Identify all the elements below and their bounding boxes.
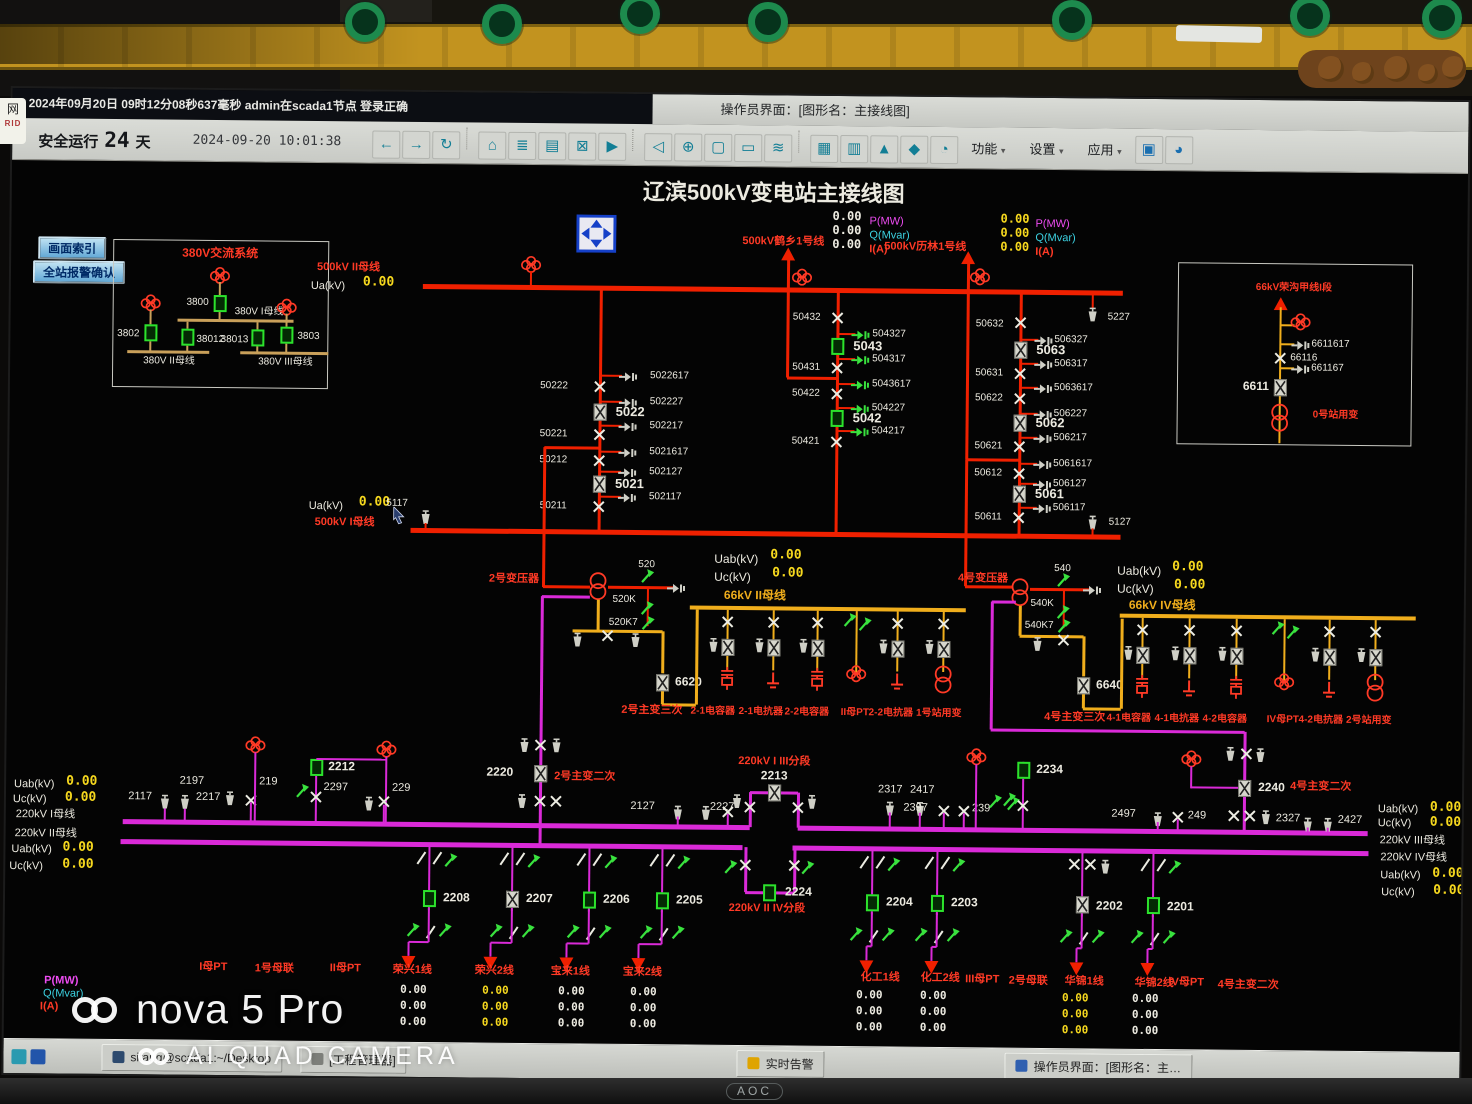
cable-icon: [1442, 56, 1466, 80]
diagram-label: 220kV II母线: [15, 828, 77, 840]
breaker-closed-icon[interactable]: [767, 639, 780, 656]
camera-watermark: nova 5 Pro: [58, 986, 344, 1033]
breaker-closed-icon[interactable]: [811, 639, 824, 656]
disconnector-icon[interactable]: [791, 801, 805, 820]
capacitor-icon: [1227, 676, 1245, 705]
switch-icon[interactable]: [406, 922, 422, 943]
diagram-label: 540: [1054, 564, 1071, 575]
cable-icon: [1384, 56, 1410, 82]
wire: [1020, 634, 1084, 638]
diagram-label: 2201: [1167, 901, 1194, 914]
breaker-open-icon[interactable]: [1146, 896, 1159, 913]
diagram-label: 2206: [603, 893, 630, 906]
disconnector-icon[interactable]: [592, 500, 606, 519]
switch-icon[interactable]: [849, 926, 865, 947]
layers-icon[interactable]: ≋: [764, 134, 792, 162]
disconnector-icon[interactable]: [549, 794, 563, 813]
switch-icon[interactable]: [566, 923, 582, 944]
disconnector-icon[interactable]: [1368, 625, 1382, 644]
capacitor-icon: [718, 667, 736, 696]
diagram-value: 0.00: [62, 857, 93, 870]
breaker-open-icon[interactable]: [280, 326, 293, 343]
disconnector-icon[interactable]: [891, 616, 905, 635]
pt-icon: [1254, 747, 1266, 767]
disconnector-icon[interactable]: [514, 851, 526, 872]
switch-icon[interactable]: [671, 924, 687, 945]
disconnector-icon[interactable]: [1012, 440, 1026, 459]
disconnector-icon[interactable]: [829, 435, 843, 454]
menu-应用[interactable]: 应用 ▾: [1076, 142, 1134, 158]
wire: [1327, 828, 1329, 833]
pt-icon: [1087, 307, 1099, 327]
wire: [543, 585, 590, 588]
disconnector-icon[interactable]: [1012, 511, 1026, 530]
diagram-label: 502217: [649, 421, 682, 432]
wire: [1081, 914, 1083, 948]
switch-icon[interactable]: [676, 854, 692, 875]
breaker-open-icon[interactable]: [251, 329, 264, 346]
diagram-label: 2217: [196, 792, 221, 804]
ground-switch-icon[interactable]: [1082, 583, 1101, 601]
cable-icon: [1418, 64, 1438, 84]
start-icon[interactable]: [11, 1049, 26, 1064]
diagram-label: III母PT: [965, 974, 999, 986]
breaker-open-icon[interactable]: [655, 892, 668, 909]
capacitor-icon: [1133, 675, 1151, 704]
diagram-label: 4号主变三次: [1044, 712, 1105, 724]
diagram-label: 5043617: [872, 379, 911, 390]
disconnector-icon[interactable]: [593, 380, 607, 399]
disconnector-icon[interactable]: [664, 852, 676, 873]
wire: [596, 600, 599, 631]
diagram-label: 66kV IV母线: [1129, 599, 1196, 612]
ground-switch-icon[interactable]: [666, 581, 685, 599]
switch-icon[interactable]: [438, 922, 454, 943]
switch-icon[interactable]: [1056, 572, 1072, 593]
transformer-icon: [932, 665, 954, 700]
report-icon[interactable]: ▥: [840, 134, 868, 162]
breaker-open-icon[interactable]: [930, 894, 943, 911]
diagram-label: 5022: [616, 405, 645, 419]
switch-icon[interactable]: [598, 924, 614, 945]
switch-icon[interactable]: [639, 924, 655, 945]
breaker-closed-icon[interactable]: [1076, 677, 1089, 694]
ground-switch-icon[interactable]: [1291, 362, 1310, 380]
disconnector-icon[interactable]: [431, 850, 443, 871]
disconnector-icon[interactable]: [1083, 857, 1097, 876]
diagram-label: IV母PT: [1267, 715, 1299, 726]
breaker-closed-icon[interactable]: [534, 765, 547, 782]
disconnector-icon[interactable]: [1227, 809, 1241, 828]
pt-icon: [179, 794, 191, 814]
breaker-closed-icon[interactable]: [1273, 379, 1286, 396]
diagram-label: Uab(kV): [14, 779, 54, 791]
disconnector-icon[interactable]: [858, 854, 870, 875]
switch-icon[interactable]: [1271, 620, 1287, 641]
switch-icon[interactable]: [881, 926, 897, 947]
disconnector-icon[interactable]: [939, 855, 951, 876]
disconnector-icon[interactable]: [830, 311, 844, 330]
zoom-icon[interactable]: ⊕: [674, 133, 702, 161]
disconnector-icon[interactable]: [830, 387, 844, 406]
switch-icon[interactable]: [521, 923, 537, 944]
wire: [992, 600, 1016, 603]
pt-icon: [877, 639, 889, 659]
disconnector-icon[interactable]: [498, 851, 510, 872]
diagram-label: 2号主变三次: [621, 705, 682, 717]
diagram-value: 0.00: [400, 984, 427, 995]
ground-switch-icon[interactable]: [618, 446, 637, 464]
table-icon[interactable]: ▦: [810, 134, 838, 162]
bus-line: [423, 283, 1123, 295]
disconnector-icon[interactable]: [937, 617, 951, 636]
disconnector-icon[interactable]: [533, 738, 547, 757]
disconnector-icon[interactable]: [738, 858, 752, 877]
diagram-label: 220kV IV母线: [1380, 852, 1447, 864]
disconnector-icon[interactable]: [592, 428, 606, 447]
disconnector-icon[interactable]: [591, 852, 603, 873]
ground-switch-icon[interactable]: [850, 425, 869, 443]
coil-icon: [790, 268, 814, 293]
pie-icon[interactable]: ◕: [1165, 136, 1193, 164]
diagram-label: 5062: [1036, 416, 1065, 430]
disconnector-icon[interactable]: [811, 616, 825, 635]
diagram-label: 2208: [443, 892, 470, 905]
pt-icon: [1122, 645, 1134, 665]
diagram-label: 2297: [324, 782, 349, 794]
coil-icon: [1272, 672, 1296, 697]
diagram-label: II母PT: [841, 708, 869, 719]
switch-icon[interactable]: [800, 860, 816, 881]
disconnector-icon[interactable]: [600, 629, 614, 648]
wire: [1092, 528, 1094, 536]
disconnector-icon[interactable]: [1239, 747, 1253, 766]
wire: [588, 910, 590, 944]
diagram-value: 0.00: [770, 548, 801, 561]
breaker-closed-icon[interactable]: [1183, 647, 1196, 664]
pt-icon: [806, 794, 818, 814]
diagram-label: 2127: [630, 801, 655, 813]
cursor-icon: [392, 507, 406, 530]
disconnector-icon[interactable]: [1139, 857, 1151, 878]
menu-设置[interactable]: 设置 ▾: [1017, 141, 1075, 157]
switch-icon[interactable]: [1285, 624, 1301, 645]
safe-run-days: 24: [104, 127, 130, 151]
breaker-closed-icon[interactable]: [1323, 648, 1336, 665]
diagram-label: 2号变压器: [489, 574, 539, 586]
diagram-label: 2224: [785, 886, 812, 899]
diagram-label: 2号站用变: [1346, 715, 1392, 726]
diagram-label: 宝来2线: [623, 967, 662, 979]
ground-switch-icon[interactable]: [618, 370, 637, 388]
taskbar-item[interactable]: 操作员界面：[图形名：主…: [1005, 1052, 1193, 1081]
diagram-label: 5022617: [650, 371, 689, 382]
diagram-label: 504317: [872, 354, 905, 365]
ground-switch-icon[interactable]: [1032, 502, 1051, 520]
breaker-open-icon[interactable]: [213, 294, 226, 311]
diagram-label: 宝来1线: [551, 966, 590, 978]
diagram-label: 4号主变二次: [1218, 980, 1279, 992]
fullscreen-icon[interactable]: ▢: [704, 133, 732, 161]
disconnector-icon[interactable]: [1067, 857, 1081, 876]
diagram-label: 502227: [650, 397, 683, 408]
gauge-icon[interactable]: ◔: [930, 135, 958, 163]
diagram-label: 2204: [886, 896, 913, 909]
wire: [865, 946, 867, 960]
menu-功能[interactable]: 功能 ▾: [959, 141, 1017, 157]
diagram-label: 2212: [328, 760, 355, 773]
breaker-closed-icon[interactable]: [592, 475, 605, 492]
disconnector-icon[interactable]: [309, 790, 323, 809]
breaker-closed-icon[interactable]: [1136, 646, 1149, 663]
diagram-label: 4-2电容器: [1202, 714, 1247, 725]
wire: [963, 813, 965, 829]
breaker-closed-icon[interactable]: [1013, 414, 1026, 431]
breaker-closed-icon[interactable]: [656, 674, 669, 691]
start-icon[interactable]: [30, 1049, 45, 1064]
diagram-label: 50421: [792, 436, 820, 447]
toolbar-separator: [798, 130, 804, 152]
disconnector-icon[interactable]: [648, 852, 660, 873]
diagram-value: 0.00: [400, 1016, 427, 1027]
wire: [936, 913, 938, 947]
coil-icon: [1288, 312, 1312, 337]
ground-switch-icon[interactable]: [851, 353, 870, 371]
alarm-table-icon[interactable]: ▤: [538, 132, 566, 160]
tag-icon[interactable]: ◆: [900, 135, 928, 163]
breaker-open-icon[interactable]: [762, 884, 775, 901]
wire: [694, 610, 698, 705]
switch-icon[interactable]: [443, 852, 459, 873]
station-alarm-ack-button[interactable]: 全站报警确认: [33, 260, 125, 284]
refresh-icon[interactable]: ↻: [432, 131, 460, 159]
sticker-text: 网: [7, 102, 19, 116]
disconnector-icon[interactable]: [767, 615, 781, 634]
breaker-open-icon[interactable]: [144, 324, 157, 341]
switch-icon[interactable]: [1130, 929, 1146, 950]
diagram-label: 6611: [1243, 380, 1269, 393]
switch-icon[interactable]: [886, 856, 902, 877]
wire: [661, 910, 663, 944]
diagram-label: Uc(kV): [1381, 887, 1415, 899]
disconnector-icon[interactable]: [874, 854, 886, 875]
disconnector-icon[interactable]: [1013, 392, 1027, 411]
switch-icon[interactable]: [951, 857, 967, 878]
diagram-value: 0.00: [1062, 992, 1089, 1003]
ground-switch-icon[interactable]: [1033, 382, 1052, 400]
taskbar-item-icon: [748, 1057, 760, 1069]
breaker-open-icon[interactable]: [181, 328, 194, 345]
diagram-label: Uc(kV): [714, 571, 751, 584]
pt-icon: [159, 794, 171, 814]
switch-icon[interactable]: [946, 927, 962, 948]
back-icon[interactable]: ←: [372, 130, 400, 158]
diagram-label: 661167: [1311, 363, 1344, 374]
disconnector-icon[interactable]: [1013, 316, 1027, 335]
pt-icon: [629, 632, 641, 652]
run-icon[interactable]: ▶: [598, 132, 626, 160]
diagram-label: 3803: [297, 331, 319, 342]
switch-icon[interactable]: [858, 616, 874, 637]
ground-switch-icon[interactable]: [1033, 432, 1052, 450]
ground-switch-icon[interactable]: [850, 378, 869, 396]
bus-line: [690, 606, 966, 613]
diagram-value: 0.00: [62, 840, 93, 853]
ground-switch-icon[interactable]: [617, 491, 636, 509]
disconnector-icon[interactable]: [1322, 625, 1336, 644]
taskbar-item[interactable]: 实时告警: [737, 1050, 825, 1078]
pt-icon: [923, 639, 935, 659]
breaker-closed-icon[interactable]: [1238, 779, 1251, 796]
cable-coil-icon: [482, 4, 522, 44]
ground-switch-icon[interactable]: [1034, 358, 1053, 376]
diagram-value: 0.00: [558, 1001, 585, 1012]
disconnector-icon[interactable]: [415, 850, 427, 871]
pt-icon: [707, 637, 719, 657]
disconnector-icon[interactable]: [575, 851, 587, 872]
home-icon[interactable]: ⌂: [478, 131, 506, 159]
ground-switch-icon[interactable]: [618, 420, 637, 438]
diagram-value: 0.00: [630, 986, 657, 997]
wire: [727, 814, 729, 827]
window-icon[interactable]: ▭: [734, 133, 762, 161]
breaker-closed-icon[interactable]: [767, 784, 780, 801]
disconnector-icon[interactable]: [1155, 857, 1167, 878]
breaker-open-icon[interactable]: [310, 758, 323, 775]
wire: [428, 908, 430, 942]
diagram-label: Uab(kV): [1117, 565, 1161, 578]
cable-icon: [1352, 62, 1374, 84]
diagram-value: 0.00: [1132, 1009, 1159, 1020]
pt-icon: [753, 638, 765, 658]
diagram-value: 0.00: [856, 1005, 883, 1016]
disconnector-icon[interactable]: [1182, 623, 1196, 642]
disconnector-icon[interactable]: [1016, 799, 1030, 818]
diagram-label: 化工1线: [861, 972, 900, 984]
diagram-label: Uc(kV): [13, 794, 47, 806]
switch-icon[interactable]: [843, 612, 859, 633]
disconnector-icon[interactable]: [1229, 624, 1243, 643]
breaker-closed-icon[interactable]: [721, 638, 734, 655]
coil-icon: [968, 267, 992, 292]
switch-icon[interactable]: [1162, 929, 1178, 950]
breaker-closed-icon[interactable]: [505, 890, 518, 907]
disconnector-icon[interactable]: [1056, 633, 1070, 652]
disconnector-icon[interactable]: [923, 855, 935, 876]
diagram-label: 50621: [975, 441, 1003, 452]
breaker-open-icon[interactable]: [865, 894, 878, 911]
app-grid-icon[interactable]: ▣: [1135, 135, 1163, 163]
screen-index-button[interactable]: 画面索引: [38, 236, 106, 260]
breaker-closed-icon[interactable]: [1230, 647, 1243, 664]
diagram-label: 506217: [1053, 433, 1086, 444]
disconnector-icon[interactable]: [1135, 623, 1149, 642]
disconnector-icon[interactable]: [721, 615, 735, 634]
switch-icon[interactable]: [603, 854, 619, 875]
coil-icon: [844, 664, 868, 689]
switch-icon[interactable]: [1059, 928, 1075, 949]
bus-line: [123, 819, 750, 830]
diagram-label: 5063: [1036, 343, 1065, 357]
switch-icon[interactable]: [641, 615, 657, 636]
alarm-message: 2024年09月20日 09时12分08秒637毫秒 admin在scada1节…: [29, 96, 409, 114]
forward-icon[interactable]: →: [402, 130, 430, 158]
diagram-label: 3802: [117, 329, 139, 340]
watermark-logo-icon: [152, 1048, 169, 1065]
diagram-label: 2197: [180, 776, 205, 788]
reactor-icon: [765, 672, 781, 695]
breaker-closed-icon[interactable]: [1014, 341, 1027, 358]
breaker-closed-icon[interactable]: [1075, 896, 1088, 913]
pt-icon: [1099, 859, 1111, 879]
bus-line: [121, 839, 743, 850]
switch-icon[interactable]: [489, 923, 505, 944]
pt-icon: [224, 791, 236, 811]
breaker-closed-icon[interactable]: [593, 403, 606, 420]
breaker-closed-icon[interactable]: [891, 640, 904, 657]
diagram-value: 0.00: [833, 210, 862, 222]
breaker-closed-icon[interactable]: [1369, 649, 1382, 666]
wire: [989, 601, 993, 729]
taskbar-item-icon: [1016, 1060, 1028, 1072]
monitor-bezel: AOC: [0, 1078, 1472, 1104]
reactor-icon: [1181, 680, 1197, 703]
mute-icon[interactable]: ◁: [644, 133, 672, 161]
breaker-closed-icon[interactable]: [1012, 485, 1025, 502]
close-box-icon[interactable]: ⊠: [568, 132, 596, 160]
list-icon[interactable]: ≣: [508, 131, 536, 159]
scada-screen: 画面索引 全站报警确认 辽滨500kV变电站主接线图380V交流系统380038…: [3, 88, 1468, 1087]
switch-icon[interactable]: [526, 853, 542, 874]
wire: [943, 813, 945, 829]
breaker-open-icon[interactable]: [1017, 761, 1030, 778]
diagram-label: 2220: [486, 766, 513, 779]
switch-icon[interactable]: [1167, 859, 1183, 880]
pt-icon: [1031, 636, 1043, 656]
wire: [1082, 636, 1085, 676]
diagram-value: 0.00: [363, 275, 394, 288]
switch-icon[interactable]: [914, 927, 930, 948]
diagram-label: 500kV历林1号线: [884, 241, 966, 253]
diagram-value: 0.00: [1433, 884, 1464, 897]
diagram-label: 荣兴2线: [475, 965, 514, 977]
diagram-label: 2-2电容器: [785, 707, 830, 718]
breaker-open-icon[interactable]: [422, 890, 435, 907]
breaker-closed-icon[interactable]: [937, 640, 950, 657]
disconnector-icon[interactable]: [1013, 367, 1027, 386]
disconnector-icon[interactable]: [743, 800, 757, 819]
diagram-value: 0.00: [1432, 867, 1463, 880]
switch-icon[interactable]: [640, 568, 656, 589]
chart-icon[interactable]: ▲: [870, 135, 898, 163]
breaker-open-icon[interactable]: [582, 891, 595, 908]
ground-switch-icon[interactable]: [1033, 458, 1052, 476]
breaker-open-icon[interactable]: [831, 337, 844, 354]
disconnector-icon[interactable]: [533, 794, 547, 813]
wire: [567, 942, 589, 944]
diagram-label: Uc(kV): [1117, 583, 1154, 596]
switch-icon[interactable]: [1091, 928, 1107, 949]
diagram-label: 2327: [1276, 813, 1301, 825]
disconnector-icon[interactable]: [1243, 809, 1257, 828]
diagram-value: 0.00: [1132, 1025, 1159, 1036]
switch-icon[interactable]: [723, 859, 739, 880]
wire: [383, 805, 385, 824]
breaker-open-icon[interactable]: [830, 409, 843, 426]
diagram-label: 3800: [186, 297, 208, 308]
wire: [1307, 827, 1309, 832]
diagram-label: 2202: [1096, 900, 1123, 913]
